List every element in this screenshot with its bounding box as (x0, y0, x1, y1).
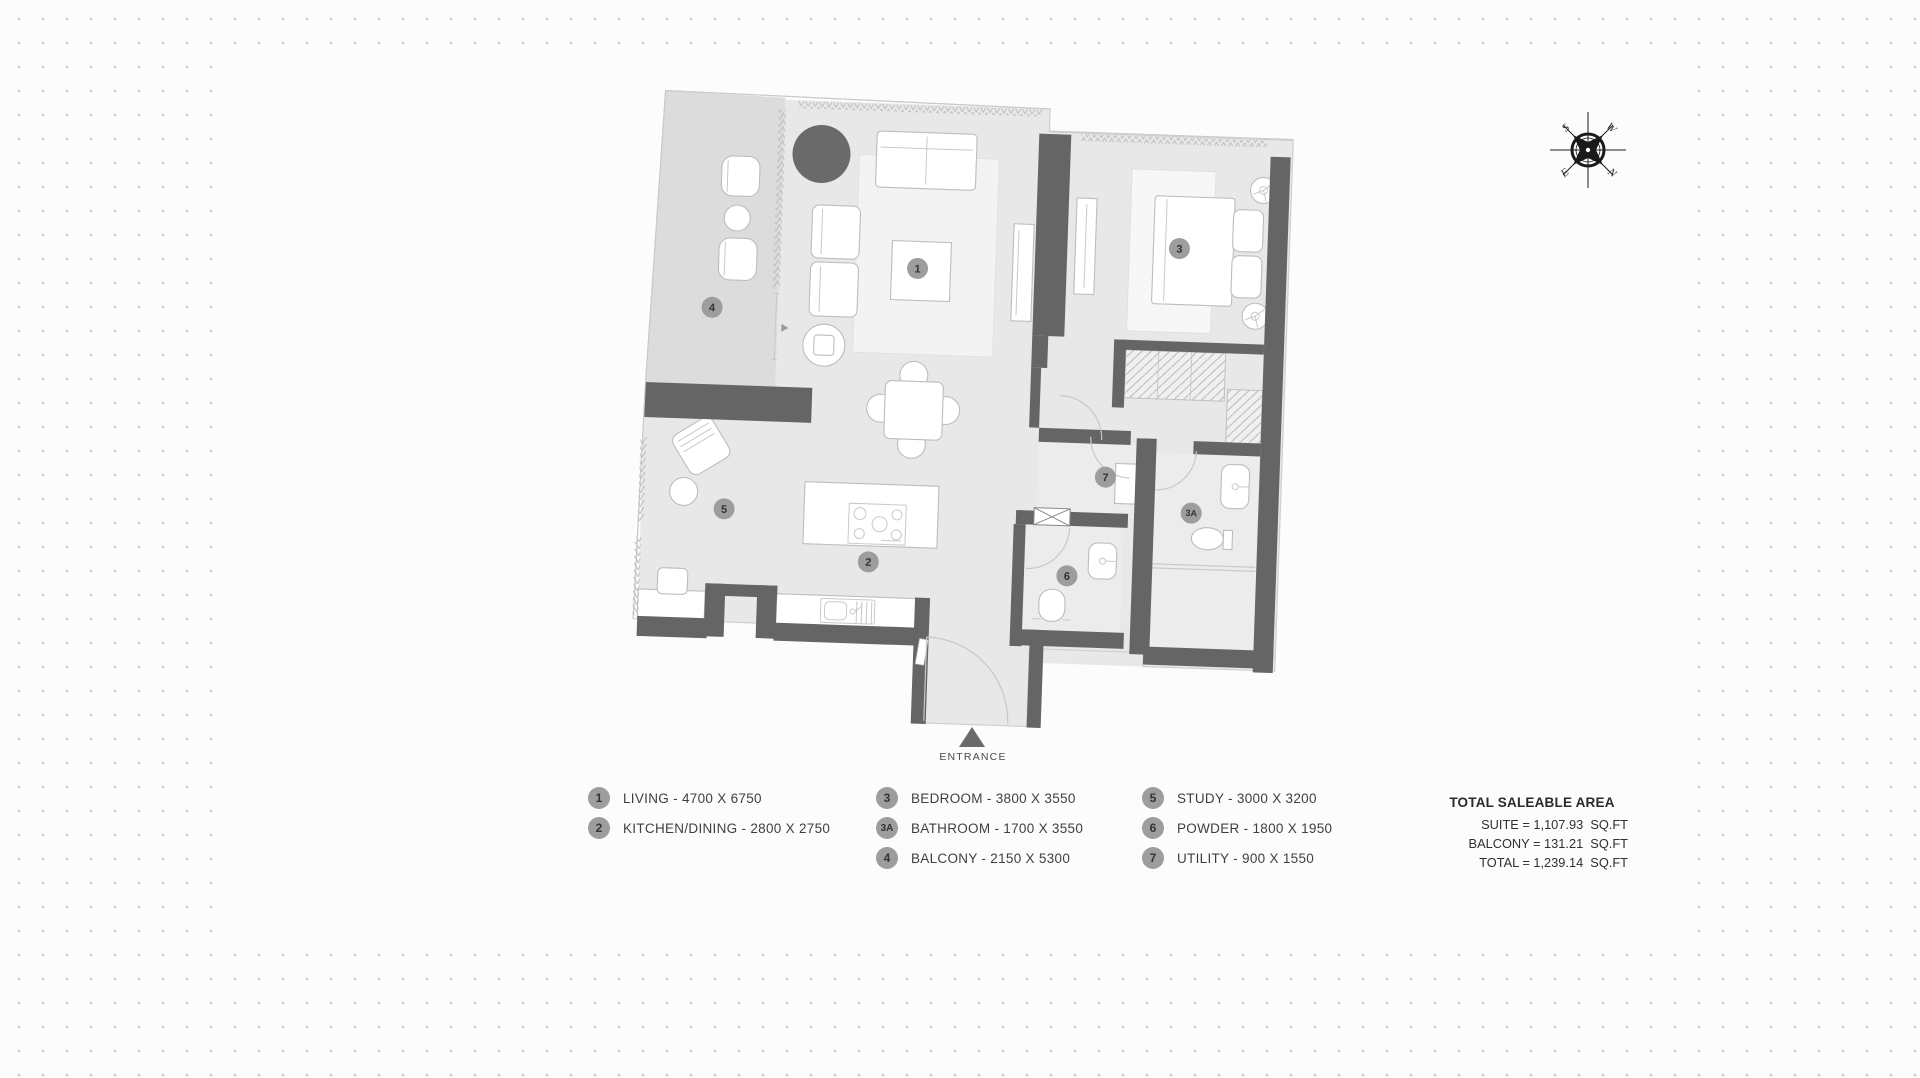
bathroom-toilet (1191, 527, 1233, 550)
legend-item-bathroom: 3A BATHROOM - 1700 X 3550 (876, 813, 1083, 843)
legend-label-study: STUDY - 3000 X 3200 (1177, 791, 1317, 806)
legend-badge-6: 6 (1142, 817, 1164, 839)
wall-hall-step (1031, 335, 1048, 368)
closet-hatch (1226, 389, 1263, 448)
totals-total: TOTAL = 1,239.14 SQ.FT (1432, 853, 1628, 872)
total-saleable-area-block: TOTAL SALEABLE AREA SUITE = 1,107.93 SQ.… (1432, 795, 1632, 872)
balcony-table (724, 205, 751, 232)
compass-label-w: W (1604, 121, 1620, 137)
floor-plan-group: 1 2 3 3A 4 (629, 90, 1294, 736)
armchair (809, 262, 859, 318)
legend-label-bedroom: BEDROOM - 3800 X 3550 (911, 791, 1076, 806)
legend-item-balcony: 4 BALCONY - 2150 X 5300 (876, 843, 1083, 873)
legend-badge-5: 5 (1142, 787, 1164, 809)
svg-text:3: 3 (1176, 243, 1183, 255)
bathroom-sink (1220, 464, 1251, 509)
legend-badge-7: 7 (1142, 847, 1164, 869)
wall-niche-left (704, 583, 726, 637)
legend-item-utility: 7 UTILITY - 900 X 1550 (1142, 843, 1332, 873)
legend-badge-3a: 3A (876, 817, 898, 839)
entrance-marker: ENTRANCE (939, 727, 1006, 763)
legend-item-powder: 6 POWDER - 1800 X 1950 (1142, 813, 1332, 843)
legend-label-utility: UTILITY - 900 X 1550 (1177, 851, 1314, 866)
legend-column-3: 5 STUDY - 3000 X 3200 6 POWDER - 1800 X … (1142, 783, 1332, 873)
ceiling-fan-icon (1242, 303, 1269, 330)
legend-label-living: LIVING - 4700 X 6750 (623, 791, 762, 806)
svg-text:3A: 3A (1185, 508, 1197, 518)
kitchen-island (803, 482, 939, 549)
totals-title: TOTAL SALEABLE AREA (1432, 795, 1632, 810)
legend-item-living: 1 LIVING - 4700 X 6750 (588, 783, 830, 813)
wall-hall-low (1029, 367, 1041, 427)
shaft-box (1034, 508, 1071, 526)
svg-text:7: 7 (1102, 472, 1109, 484)
svg-text:6: 6 (1064, 571, 1071, 583)
compass-icon: S W E N (1550, 112, 1626, 188)
totals-lines: SUITE = 1,107.93 SQ.FT BALCONY = 131.21 … (1432, 815, 1632, 872)
legend-column-2: 3 BEDROOM - 3800 X 3550 3A BATHROOM - 17… (876, 783, 1083, 873)
wall-closet-left (1112, 339, 1126, 407)
side-table-plant (813, 335, 834, 356)
dining-table (884, 380, 944, 440)
counter-stool (657, 568, 688, 595)
wall-bath-top (1193, 441, 1260, 456)
svg-text:1: 1 (914, 263, 921, 275)
legend-label-bathroom: BATHROOM - 1700 X 3550 (911, 821, 1083, 836)
tv-console-living (1011, 224, 1034, 322)
wall-bottom-left (637, 616, 708, 638)
legend-label-kitchen: KITCHEN/DINING - 2800 X 2750 (623, 821, 830, 836)
entrance-arrow-icon (959, 727, 985, 747)
pillow (1231, 255, 1262, 298)
balcony-floor (645, 90, 785, 390)
pillow (1232, 209, 1263, 252)
totals-balcony: BALCONY = 131.21 SQ.FT (1432, 834, 1628, 853)
floor-plan-drawing: 1 2 3 3A 4 (0, 0, 1920, 1078)
svg-text:5: 5 (721, 504, 728, 516)
legend-label-powder: POWDER - 1800 X 1950 (1177, 821, 1332, 836)
svg-text:2: 2 (865, 557, 872, 569)
floorplan-page: 1 2 3 3A 4 (0, 0, 1920, 1078)
legend-item-kitchen: 2 KITCHEN/DINING - 2800 X 2750 (588, 813, 830, 843)
entrance-label: ENTRANCE (939, 751, 1006, 763)
armchair (811, 205, 861, 260)
legend-item-bedroom: 3 BEDROOM - 3800 X 3550 (876, 783, 1083, 813)
wall-study (644, 382, 812, 423)
legend-badge-2: 2 (588, 817, 610, 839)
legend-label-balcony: BALCONY - 2150 X 5300 (911, 851, 1070, 866)
compass-label-n: N (1605, 165, 1620, 180)
totals-suite: SUITE = 1,107.93 SQ.FT (1432, 815, 1628, 834)
legend-column-1: 1 LIVING - 4700 X 6750 2 KITCHEN/DINING … (588, 783, 830, 843)
powder-sink (1088, 543, 1117, 580)
legend-badge-3: 3 (876, 787, 898, 809)
study-side-table (669, 477, 698, 506)
compass-center (1586, 148, 1590, 152)
legend-item-study: 5 STUDY - 3000 X 3200 (1142, 783, 1332, 813)
legend-badge-4: 4 (876, 847, 898, 869)
wardrobe-hatch (1124, 350, 1226, 401)
legend-badge-1: 1 (588, 787, 610, 809)
